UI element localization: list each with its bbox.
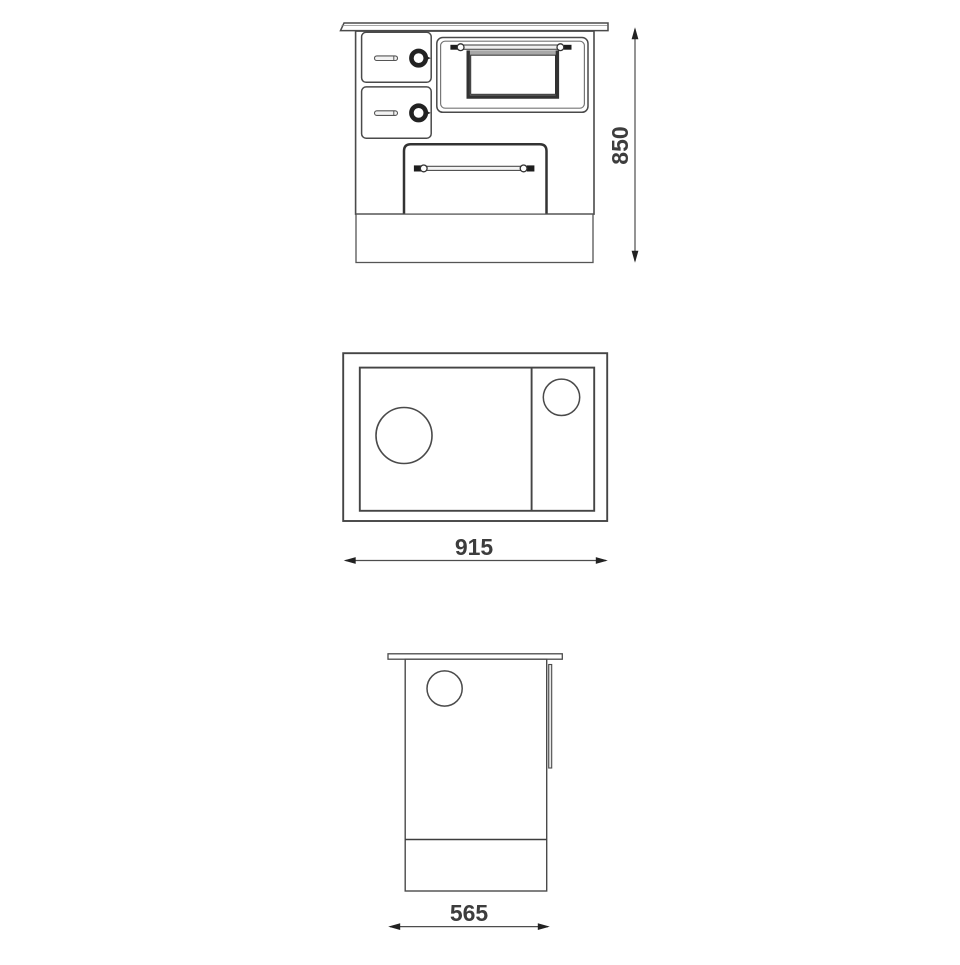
svg-text:565: 565 <box>450 900 489 926</box>
svg-text:915: 915 <box>455 534 494 560</box>
svg-text:850: 850 <box>607 126 633 164</box>
